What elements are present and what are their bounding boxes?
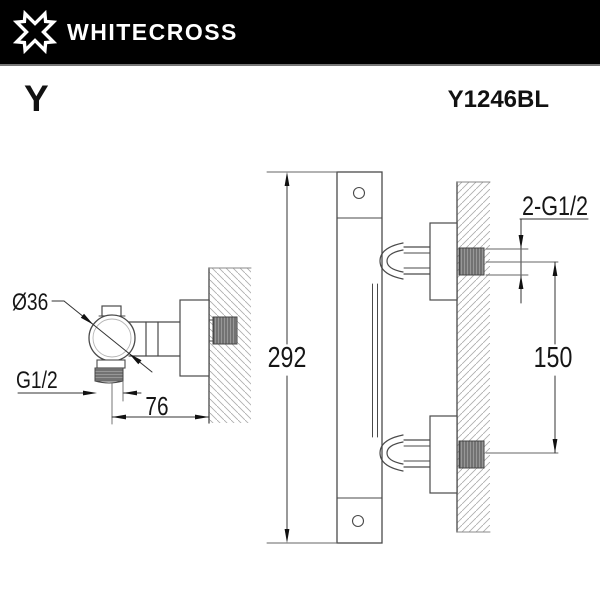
dim-thread-2g12 — [486, 219, 588, 303]
left-outlet-collar — [97, 360, 125, 368]
left-depth-label: 76 — [133, 393, 181, 419]
left-knob — [89, 315, 135, 361]
right-thread-label: 2-G1/2 — [522, 193, 586, 220]
top-screw-hole — [354, 188, 365, 199]
left-thread-label: G1/2 — [16, 369, 58, 393]
right-spacing-label: 150 — [529, 344, 577, 373]
right-wall-section — [457, 182, 490, 532]
left-body — [129, 322, 180, 356]
technical-drawing — [0, 0, 600, 600]
left-flange — [180, 300, 209, 376]
left-diameter-label: Ø36 — [12, 291, 48, 315]
left-wall-section — [209, 268, 251, 423]
left-outlet-thread — [95, 368, 123, 381]
bar-body — [337, 172, 382, 543]
bottom-screw-hole — [353, 516, 364, 527]
left-wall-nipple — [213, 317, 237, 344]
right-height-label: 292 — [263, 344, 311, 373]
